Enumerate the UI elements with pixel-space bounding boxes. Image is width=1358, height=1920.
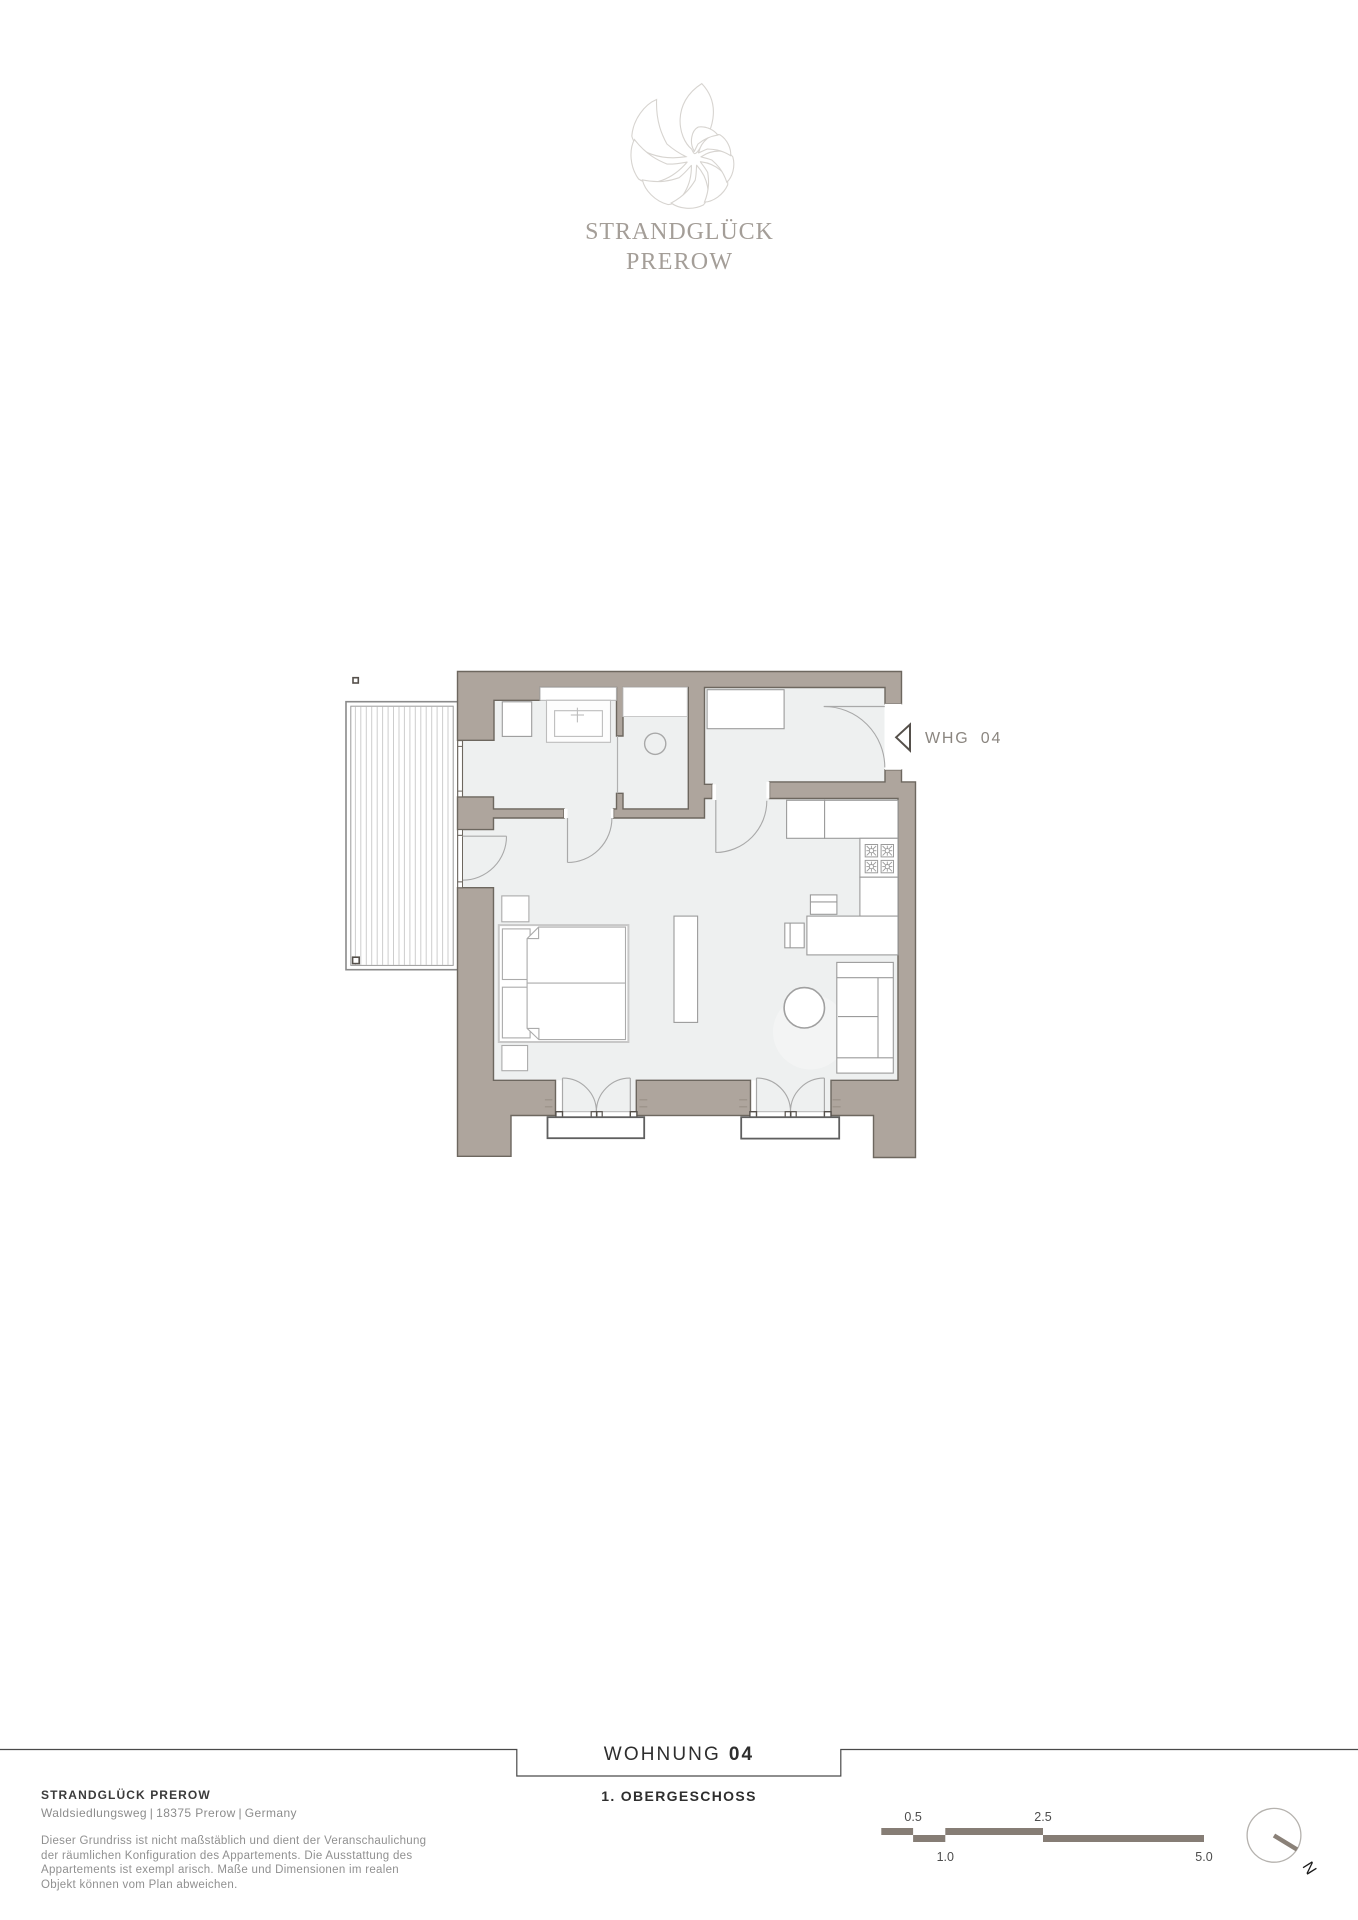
svg-text:0.5: 0.5 xyxy=(904,1810,921,1824)
svg-text:2.5: 2.5 xyxy=(1034,1810,1051,1824)
svg-text:1.0: 1.0 xyxy=(937,1850,954,1864)
svg-text:5.0: 5.0 xyxy=(1195,1850,1212,1864)
svg-text:N: N xyxy=(1299,1859,1320,1878)
svg-text:WHG 04: WHG 04 xyxy=(925,730,1002,747)
